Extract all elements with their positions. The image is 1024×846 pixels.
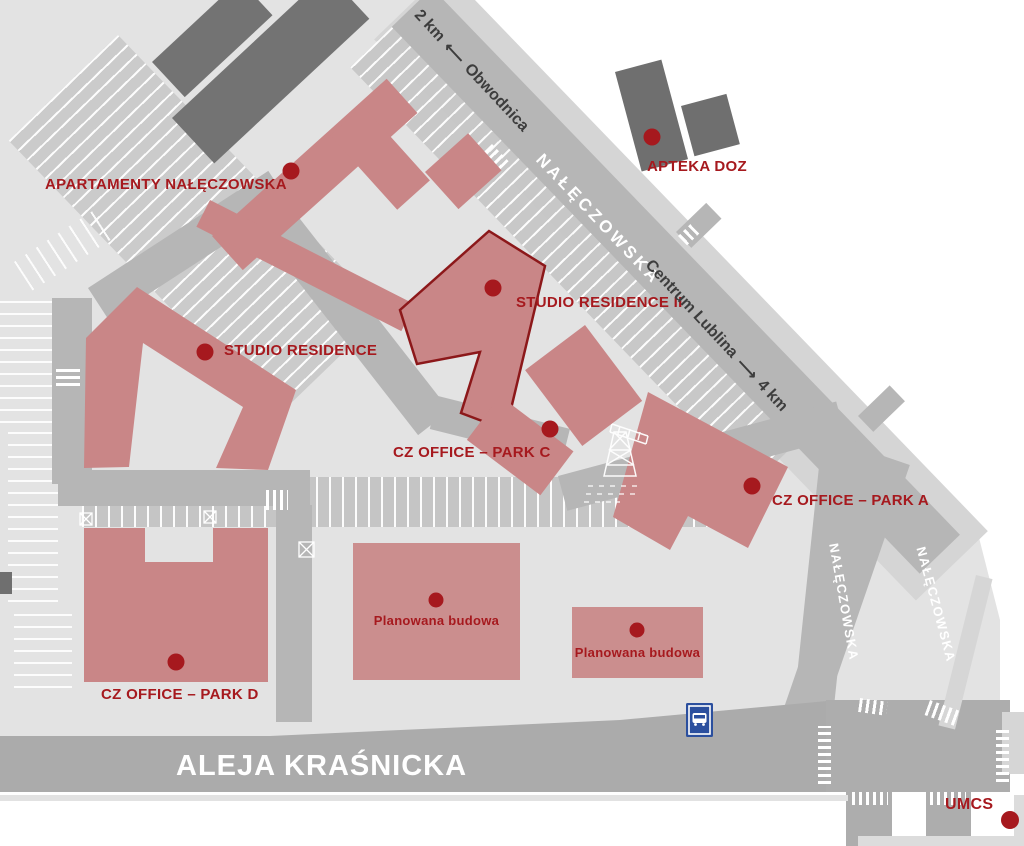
box-marking-icon — [80, 513, 92, 525]
building-planowana-budowa-2 — [572, 607, 703, 678]
building-planowana-budowa-1 — [353, 543, 520, 680]
label-studio-residence-2: STUDIO RESIDENCE II — [516, 294, 683, 311]
building-cz-office-park-a — [613, 392, 788, 550]
label-umcs: UMCS — [945, 796, 993, 814]
label-cz-office-park-a: CZ OFFICE – PARK A — [772, 492, 929, 509]
marker-planowana-2 — [630, 623, 645, 638]
marker-apteka-doz — [644, 129, 661, 146]
marker-cz-office-park-a — [744, 478, 761, 495]
label-planowana-budowa-1: Planowana budowa — [353, 613, 520, 628]
building-studio-residence — [84, 287, 296, 470]
label-cz-office-park-c: CZ OFFICE – PARK C — [393, 444, 551, 461]
building-dark-west-small — [0, 572, 12, 594]
marker-studio-residence-2 — [485, 280, 502, 297]
bus-stop-icon — [686, 703, 713, 737]
label-cz-office-park-d: CZ OFFICE – PARK D — [101, 686, 259, 703]
site-map: APARTAMENTY NAŁĘCZOWSKA APTEKA DOZ STUDI… — [0, 0, 1024, 846]
label-apartamenty-naleczowska: APARTAMENTY NAŁĘCZOWSKA — [45, 176, 287, 193]
street-label-aleja-krasnicka: ALEJA KRAŚNICKA — [176, 750, 467, 783]
poi-markers — [168, 129, 1020, 830]
box-marking-icon — [299, 542, 314, 557]
box-marking-icon — [204, 511, 216, 523]
label-apteka-doz: APTEKA DOZ — [647, 158, 747, 175]
marker-studio-residence — [197, 344, 214, 361]
label-studio-residence: STUDIO RESIDENCE — [224, 342, 377, 359]
marker-umcs — [1001, 811, 1019, 829]
building-apteka-doz-annex — [681, 94, 740, 156]
marker-planowana-1 — [429, 593, 444, 608]
marker-cz-office-park-c — [542, 421, 559, 438]
marker-cz-office-park-d — [168, 654, 185, 671]
label-planowana-budowa-2: Planowana budowa — [572, 645, 703, 660]
building-studio-residence-2 — [400, 231, 545, 430]
building-apteka-doz-main — [615, 60, 688, 172]
